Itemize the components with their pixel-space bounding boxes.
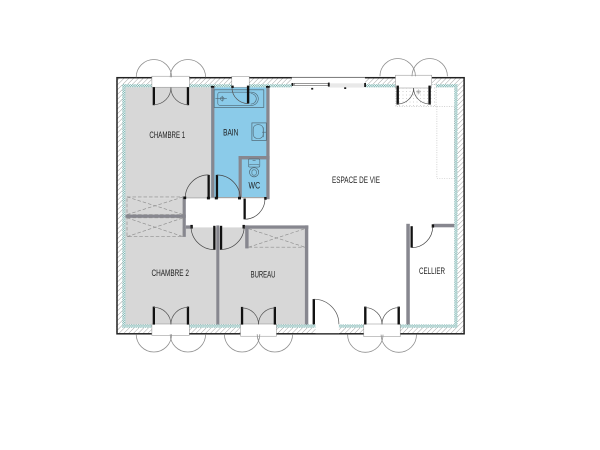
svg-text:ESPACE DE VIE: ESPACE DE VIE: [332, 174, 380, 185]
svg-text:CELLIER: CELLIER: [419, 265, 445, 276]
svg-text:CHAMBRE 1: CHAMBRE 1: [149, 129, 185, 140]
svg-text:BUREAU: BUREAU: [251, 269, 276, 280]
svg-text:BAIN: BAIN: [223, 127, 238, 138]
svg-text:WC: WC: [249, 179, 261, 190]
svg-text:CHAMBRE 2: CHAMBRE 2: [151, 267, 189, 278]
